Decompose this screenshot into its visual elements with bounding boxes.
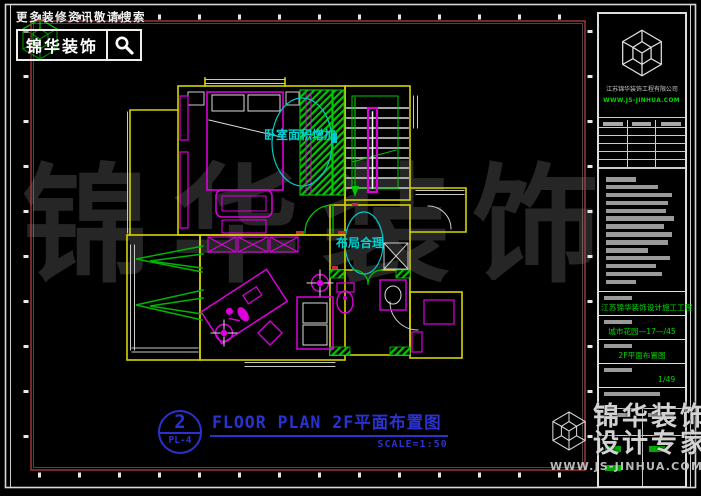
- wardrobe: [300, 90, 344, 195]
- revision-table: [599, 120, 685, 169]
- field-label-bar: [604, 344, 632, 348]
- field-sheet-no: 1/49: [599, 363, 685, 387]
- staircase: [347, 96, 408, 197]
- title-block-row: [599, 408, 685, 435]
- bed: [180, 92, 299, 228]
- field-drawing: 2F平面布置图: [599, 339, 685, 363]
- title-block-logo-cell: 江苏锦华装饰工程有限公司 WWW.JS-JINHUA.COM: [599, 14, 685, 118]
- field-label-bar: [604, 413, 630, 417]
- sheet-title: 2 PL-4 FLOOR PLAN 2F平面布置图 SCALE=1:50: [158, 410, 448, 454]
- stamp-mark: [605, 446, 621, 452]
- sheet-title-text: FLOOR PLAN 2F平面布置图: [210, 411, 448, 437]
- field-label-bar: [604, 296, 632, 300]
- field-label-bar: [604, 368, 632, 372]
- field-sheet-no-value: 1/49: [601, 376, 683, 386]
- field-project-value: 江苏锦华装饰设计施工工程: [601, 304, 683, 314]
- sheet-number: 2: [160, 412, 200, 434]
- company-site: WWW.JS-JINHUA.COM: [604, 96, 681, 103]
- title-block-row: [599, 435, 685, 486]
- stamp-mark: [649, 446, 665, 452]
- search-button[interactable]: [106, 31, 140, 59]
- search-hint: 更多装修资讯敬请搜索: [16, 9, 146, 25]
- field-site-value: 城市花园—17—/45: [601, 328, 683, 338]
- search-widget: 更多装修资讯敬请搜索 锦华装饰: [16, 9, 146, 61]
- company-cube-icon: [619, 28, 665, 78]
- sheet-scale: SCALE=1:50: [377, 439, 447, 450]
- title-block: 江苏锦华装饰工程有限公司 WWW.JS-JINHUA.COM 江苏锦华装饰设计施…: [597, 12, 687, 488]
- stamp-mark: [605, 465, 621, 471]
- sheet-code: PL-4: [169, 434, 192, 448]
- desk: [201, 269, 287, 345]
- cabinet-row: [208, 220, 298, 252]
- field-drawing-value: 2F平面布置图: [601, 352, 683, 362]
- field-project: 江苏锦华装饰设计施工工程: [599, 291, 685, 315]
- field-label-bar: [604, 320, 632, 324]
- field-label-bar: [604, 392, 660, 396]
- balcony-curtains: [136, 246, 203, 320]
- shaft: [384, 243, 408, 269]
- annotation-layout: 布局合理: [336, 212, 384, 274]
- search-box[interactable]: 锦华装饰: [16, 29, 142, 61]
- annotation-bedroom-text: 卧室面积增加: [264, 127, 336, 142]
- brand-text: 锦华装饰: [18, 31, 106, 59]
- field-site: 城市花园—17—/45: [599, 315, 685, 339]
- search-icon: [114, 35, 134, 55]
- sofa: [297, 297, 333, 349]
- company-name: 江苏锦华装饰工程有限公司: [606, 83, 678, 92]
- field-label-bar: [648, 413, 674, 417]
- cad-floorplan-page: 锦华装饰: [0, 0, 701, 496]
- notes-block: [599, 169, 685, 291]
- sheet-number-bubble: 2 PL-4: [158, 410, 202, 454]
- annotation-layout-text: 布局合理: [336, 235, 384, 250]
- floor-plan: 卧室面积增加 布局合理: [127, 78, 466, 367]
- title-block-row: [599, 387, 685, 408]
